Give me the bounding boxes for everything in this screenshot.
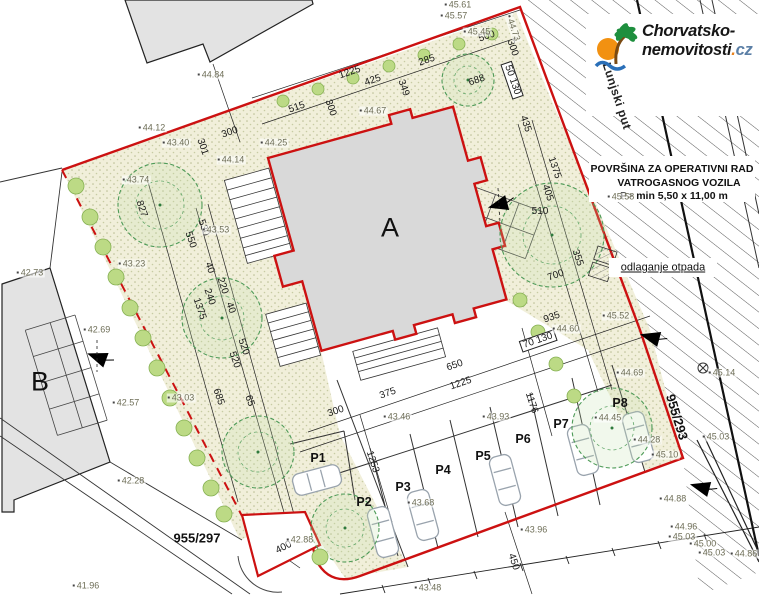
- brand-name-line2: nemovitosti.cz: [642, 41, 752, 60]
- site-plan-page: AB955/297955/293Lunjski putPOVRŠINA ZA O…: [0, 0, 759, 595]
- brand-logo[interactable]: Chorvatsko- nemovitosti.cz: [592, 22, 756, 72]
- survey-point-marker: [698, 363, 708, 373]
- palm-beach-icon: [592, 22, 638, 72]
- brand-tld: cz: [736, 41, 753, 59]
- brand-name-line1: Chorvatsko-: [642, 22, 752, 41]
- site-plan-drawing: [0, 0, 759, 595]
